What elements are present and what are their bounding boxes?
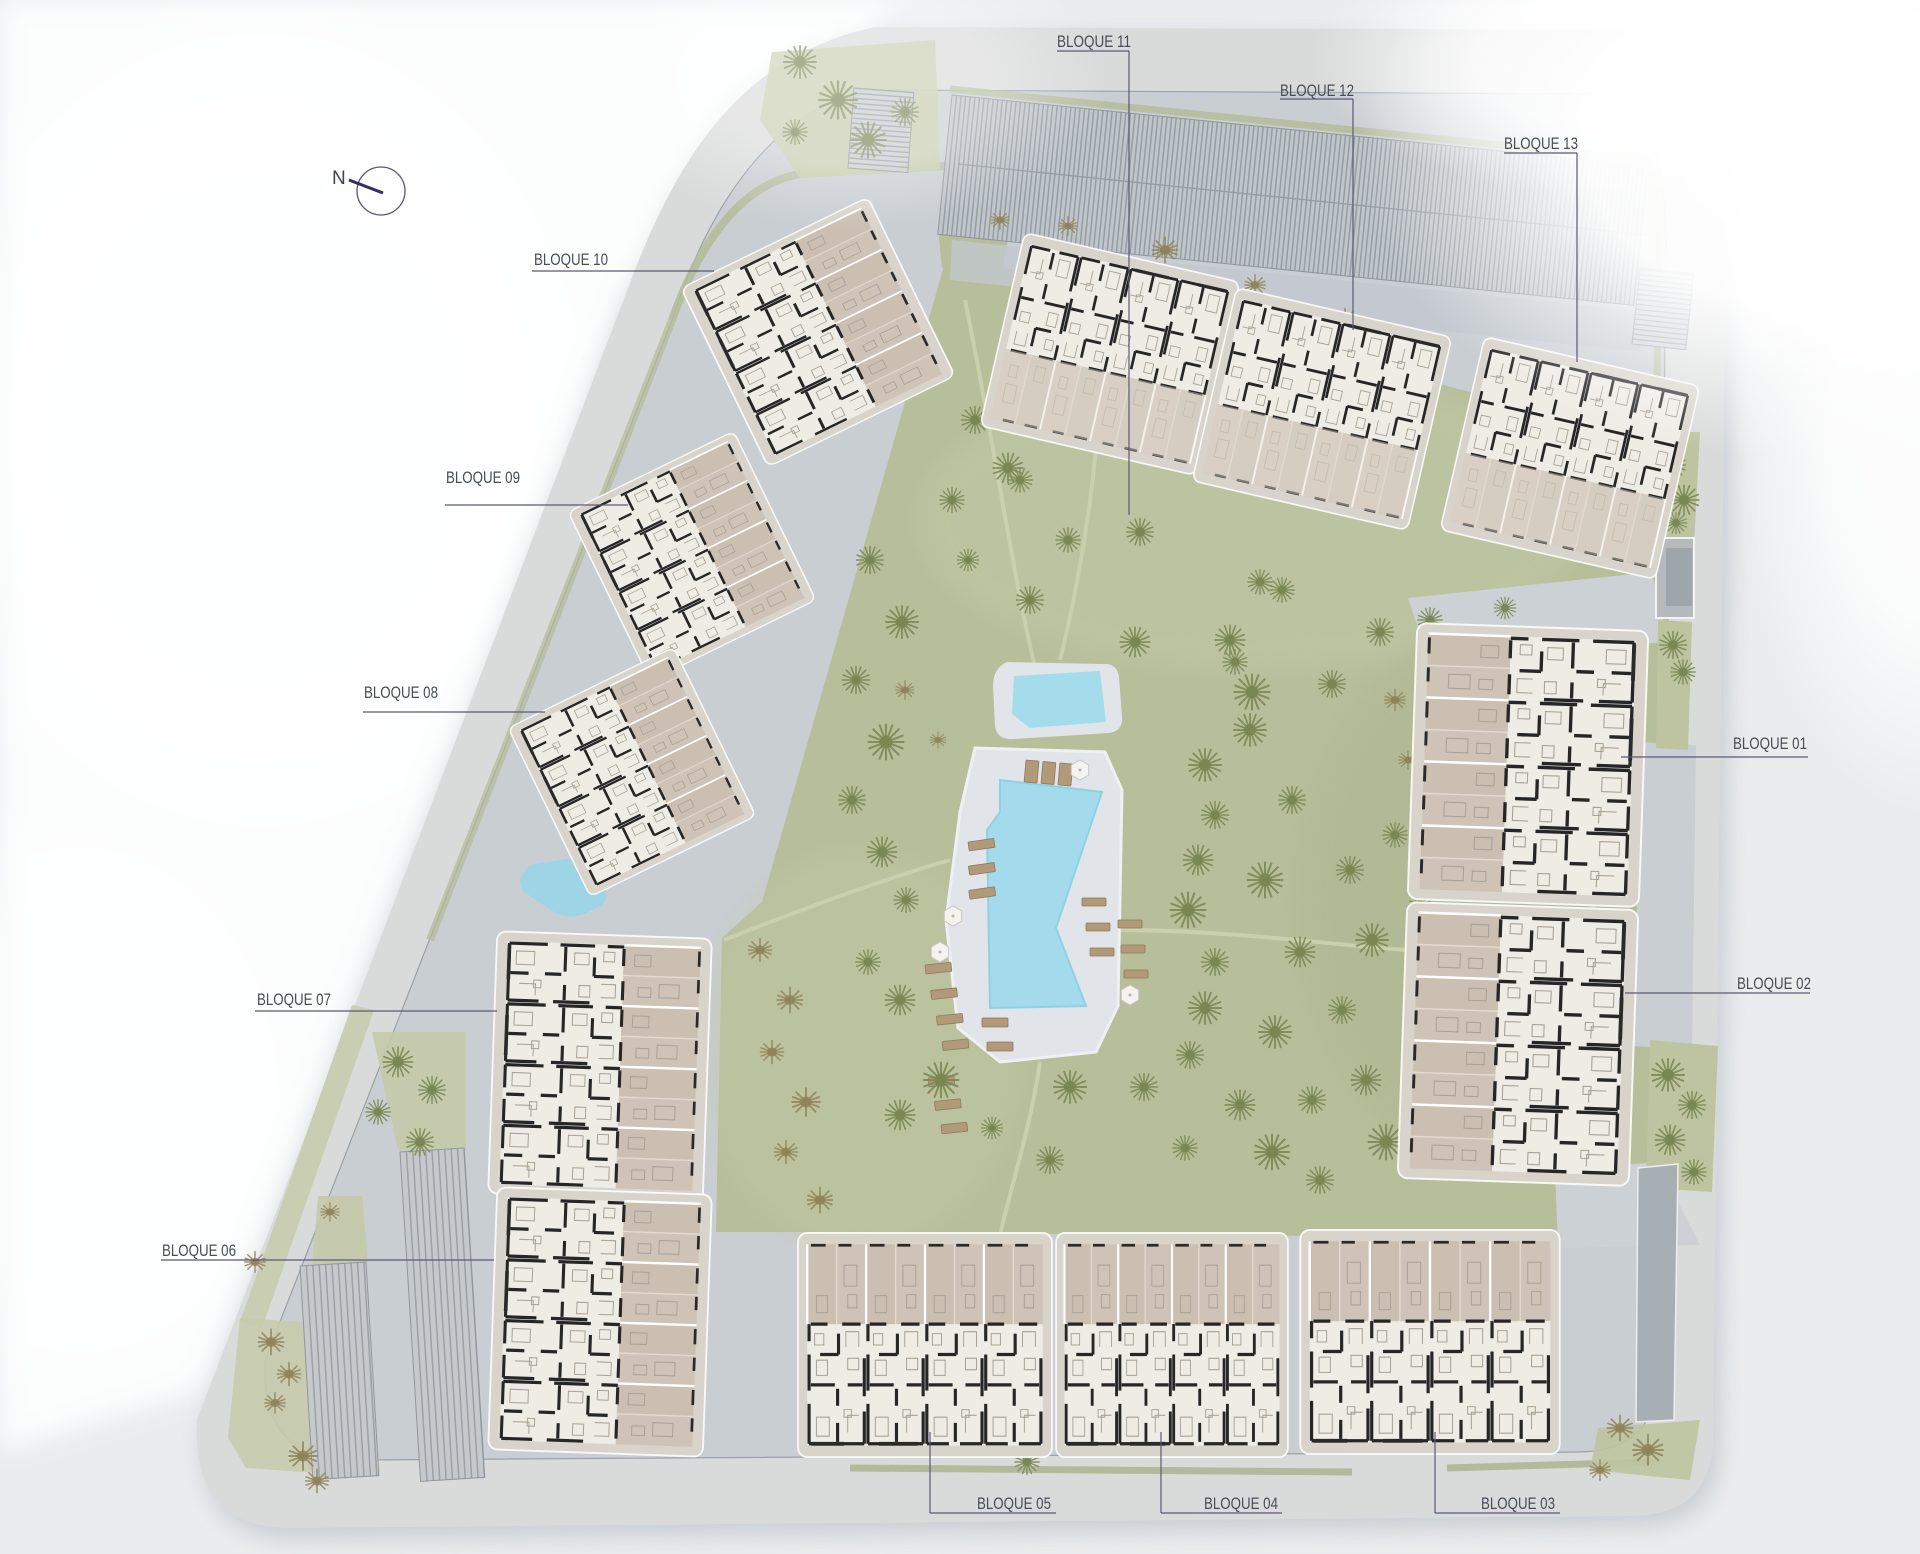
svg-text:BLOQUE 09: BLOQUE 09	[446, 468, 520, 487]
svg-text:BLOQUE 13: BLOQUE 13	[1504, 134, 1578, 153]
svg-text:BLOQUE 03: BLOQUE 03	[1481, 1494, 1555, 1513]
svg-text:BLOQUE 06: BLOQUE 06	[162, 1241, 236, 1260]
svg-text:BLOQUE 08: BLOQUE 08	[364, 683, 438, 702]
svg-text:BLOQUE 04: BLOQUE 04	[1204, 1494, 1278, 1513]
svg-text:BLOQUE 01: BLOQUE 01	[1733, 734, 1807, 753]
svg-text:BLOQUE 12: BLOQUE 12	[1280, 81, 1354, 100]
svg-text:BLOQUE 02: BLOQUE 02	[1737, 974, 1811, 993]
svg-text:BLOQUE 05: BLOQUE 05	[977, 1494, 1051, 1513]
svg-text:BLOQUE 07: BLOQUE 07	[257, 990, 331, 1009]
svg-text:BLOQUE 10: BLOQUE 10	[534, 250, 608, 269]
svg-text:BLOQUE 11: BLOQUE 11	[1057, 32, 1131, 51]
svg-text:N: N	[332, 168, 346, 189]
